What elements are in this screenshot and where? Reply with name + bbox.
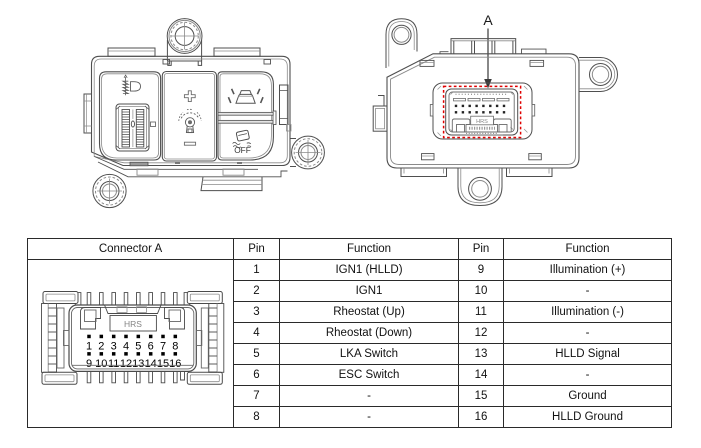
svg-text:6: 6 [148, 341, 154, 353]
svg-text:7: 7 [160, 341, 166, 353]
svg-text:3: 3 [111, 341, 117, 353]
svg-text:HRS: HRS [124, 319, 142, 329]
svg-text:5: 5 [135, 341, 141, 353]
svg-text:2: 2 [98, 341, 104, 353]
svg-text:14: 14 [145, 358, 157, 370]
svg-text:8: 8 [172, 341, 178, 353]
svg-text:HRS: HRS [476, 119, 488, 125]
svg-text:9: 9 [86, 358, 92, 370]
svg-text:4: 4 [123, 341, 129, 353]
svg-text:15: 15 [157, 358, 169, 370]
svg-text:OFF: OFF [234, 145, 251, 155]
svg-text:11: 11 [108, 358, 119, 370]
svg-text:A: A [483, 12, 493, 28]
svg-text:10: 10 [95, 358, 107, 370]
svg-text:1: 1 [86, 341, 92, 353]
svg-text:13: 13 [132, 358, 144, 370]
svg-text:16: 16 [169, 358, 181, 370]
svg-text:12: 12 [120, 358, 132, 370]
